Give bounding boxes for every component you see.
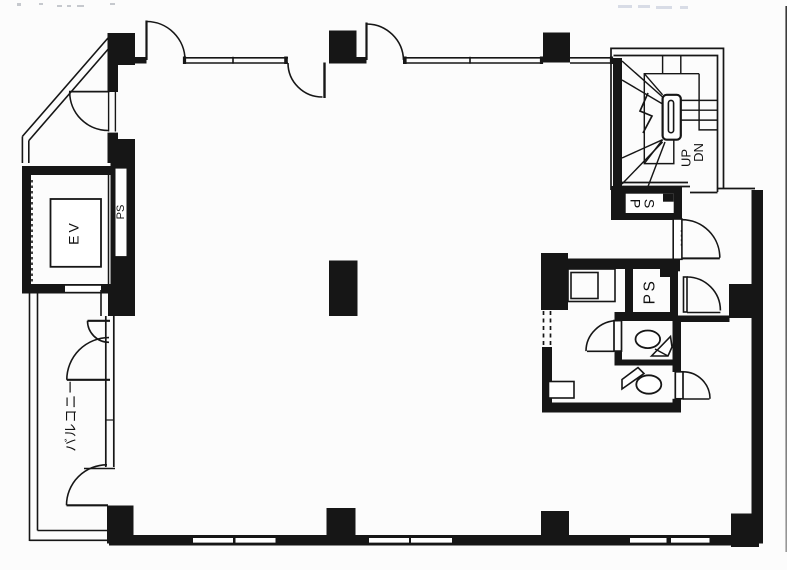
svg-text:EV: EV: [66, 220, 82, 245]
svg-text:S: S: [641, 199, 657, 208]
svg-text:PS: PS: [642, 279, 659, 305]
svg-text:DN: DN: [691, 143, 706, 162]
svg-text:P: P: [627, 199, 643, 208]
svg-text:バルコニー: バルコニー: [64, 379, 79, 451]
svg-text:PS: PS: [115, 205, 127, 220]
